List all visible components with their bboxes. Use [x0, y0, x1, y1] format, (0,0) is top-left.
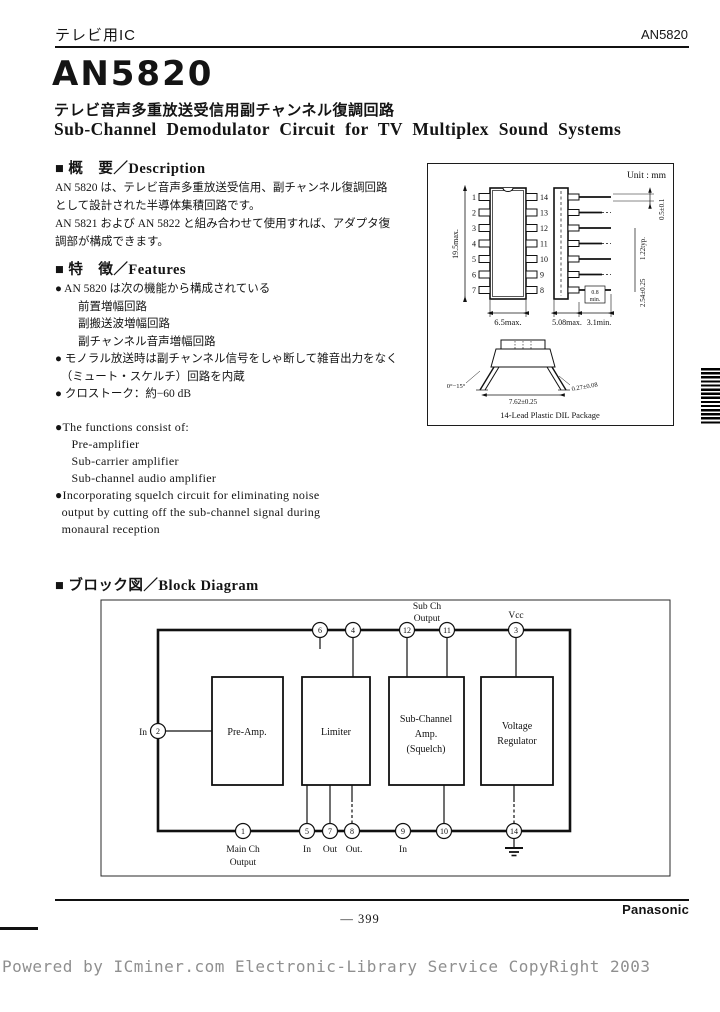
svg-text:10: 10 [540, 255, 548, 264]
svg-text:1: 1 [472, 193, 476, 202]
diagram-frame [101, 600, 670, 876]
page-header-category: テレビ用IC [55, 24, 136, 45]
ground-icon [505, 848, 523, 856]
feature-item: Sub-carrier amplifier [55, 453, 320, 470]
dim-min08-unit: min. [590, 297, 601, 303]
package-outline-figure: Unit : mm 1 2 3 4 5 6 7 14 13 12 11 [427, 163, 674, 426]
package-front-view [465, 188, 537, 317]
svg-text:9: 9 [401, 827, 405, 836]
feature-item: Sub-channel audio amplifier [55, 470, 320, 487]
svg-text:13: 13 [540, 209, 548, 218]
svg-text:8: 8 [350, 827, 354, 836]
header-rule [55, 46, 689, 48]
svg-text:9: 9 [540, 271, 544, 280]
feature-item: 副搬送波増幅回路 [55, 316, 398, 334]
sub-ch-output-label-2: Output [414, 614, 441, 624]
feature-item: ● モノラル放送時は副チャンネル信号をしゃ断して雑音出力をなく [55, 351, 398, 369]
svg-text:14: 14 [510, 827, 518, 836]
vreg-label-1: Voltage [502, 721, 533, 732]
feature-item: monaural reception [55, 521, 320, 538]
dim-min08: 0.8 [591, 290, 598, 296]
block-diagram-figure: Pre-Amp. Limiter Sub-Channel Amp. (Squel… [100, 596, 672, 885]
package-end-view [466, 340, 570, 395]
block-diagram-heading: ■ ブロック図／Block Diagram [55, 574, 259, 595]
description-heading: ■ 概 要／Description [55, 157, 206, 178]
dim-row-spacing: 7.62±0.25 [509, 398, 538, 406]
package-caption: 14-Lead Plastic DIL Package [500, 410, 600, 420]
svg-text:4: 4 [351, 626, 355, 635]
text-line: として設計された半導体集積回路です。 [55, 197, 390, 215]
svg-text:6: 6 [318, 626, 322, 635]
feature-item: 前置増幅回路 [55, 299, 398, 317]
preamp-label: Pre-Amp. [227, 727, 266, 738]
svg-text:4: 4 [472, 240, 476, 249]
feature-item: ●The functions consist of: [55, 419, 320, 436]
subtitle-japanese: テレビ音声多重放送受信用副チャンネル復調回路 [54, 99, 395, 120]
block-diagram-drawing: Pre-Amp. Limiter Sub-Channel Amp. (Squel… [100, 596, 672, 880]
svg-text:7: 7 [328, 827, 332, 836]
footer-rule [55, 899, 689, 901]
svg-text:8: 8 [540, 286, 544, 295]
svg-text:12: 12 [540, 224, 548, 233]
pin8-label: Out. [346, 845, 363, 855]
package-drawing: Unit : mm 1 2 3 4 5 6 7 14 13 12 11 [428, 164, 673, 425]
feature-item: ● AN 5820 は次の機能から構成されている [55, 281, 398, 299]
dim-lead-thickness: 0.27±0.08 [571, 382, 598, 393]
scan-artifact [0, 927, 38, 930]
unit-label: Unit : mm [627, 171, 667, 181]
feature-item: Pre-amplifier [55, 436, 320, 453]
features-japanese-list: ● AN 5820 は次の機能から構成されている 前置増幅回路 副搬送波増幅回路… [55, 281, 398, 404]
registration-mark [701, 368, 720, 424]
svg-text:6: 6 [472, 271, 476, 280]
page-header-part-number: AN5820 [641, 27, 688, 42]
dim-body-width: 6.5max. [494, 317, 521, 327]
watermark-text: Powered by ICminer.com Electronic-Librar… [2, 957, 651, 976]
vreg-label-2: Regulator [497, 736, 537, 747]
dim-body-height: 19.5max. [451, 229, 460, 259]
limiter-label: Limiter [321, 727, 352, 738]
svg-text:5: 5 [305, 827, 309, 836]
dim-lead-width: 0.5±0.1 [658, 198, 666, 220]
main-ch-output-label-1: Main Ch [226, 845, 260, 855]
svg-text:2: 2 [472, 209, 476, 218]
svg-text:11: 11 [540, 240, 548, 249]
svg-text:2: 2 [156, 727, 160, 736]
features-english-list: ●The functions consist of: Pre-amplifier… [55, 419, 320, 538]
feature-item: ● クロストーク：約−60 dB [55, 386, 398, 404]
svg-text:3: 3 [472, 224, 476, 233]
pin9-label: In [399, 845, 407, 855]
svg-text:11: 11 [443, 626, 451, 635]
subch-label-2: Amp. [415, 729, 438, 740]
vcc-label: Vcc [508, 611, 523, 621]
pin7-label: Out [323, 845, 338, 855]
datasheet-page: { "page": { "header_left": "テレビ用IC", "he… [0, 0, 720, 1012]
feature-item: 副チャンネル音声増幅回路 [55, 334, 398, 352]
description-paragraph: AN 5820 は、テレビ音声多重放送受信用、副チャンネル復調回路 として設計さ… [55, 179, 390, 251]
subtitle-english: Sub-Channel Demodulator Circuit for TV M… [54, 119, 621, 140]
feature-item: ●Incorporating squelch circuit for elimi… [55, 487, 320, 504]
dim-lead-angle: 0°−15° [447, 383, 466, 390]
input-label: In [139, 728, 147, 738]
subch-label-3: (Squelch) [407, 744, 446, 755]
svg-text:10: 10 [440, 827, 448, 836]
sub-ch-output-label-1: Sub Ch [413, 602, 441, 612]
subch-label-1: Sub-Channel [400, 714, 452, 725]
feature-item: （ミュート・スケルチ）回路を内蔵 [55, 369, 398, 387]
svg-text:7: 7 [472, 286, 476, 295]
svg-text:1: 1 [241, 827, 245, 836]
svg-text:3: 3 [514, 626, 518, 635]
feature-item: output by cutting off the sub-channel si… [55, 504, 320, 521]
text-line: 調部が構成できます。 [55, 233, 390, 251]
text-line: AN 5821 および AN 5822 と組み合わせて使用すれば、アダプタ復 [55, 215, 390, 233]
dim-typ: 1.22typ. [639, 237, 647, 260]
dim-pitch: 2.54±0.25 [639, 278, 647, 307]
dim-lead-length: 3.1min. [587, 318, 611, 327]
svg-text:14: 14 [540, 193, 548, 202]
features-heading: ■ 特 徴／Features [55, 258, 186, 279]
svg-text:5: 5 [472, 255, 476, 264]
page-title: AN5820 [52, 54, 213, 94]
dim-seat: 5.08max. [552, 318, 582, 327]
pin5-label: In [303, 845, 311, 855]
text-line: AN 5820 は、テレビ音声多重放送受信用、副チャンネル復調回路 [55, 179, 390, 197]
svg-text:12: 12 [403, 626, 411, 635]
page-number: — 399 [0, 912, 720, 927]
main-ch-output-label-2: Output [230, 858, 257, 868]
